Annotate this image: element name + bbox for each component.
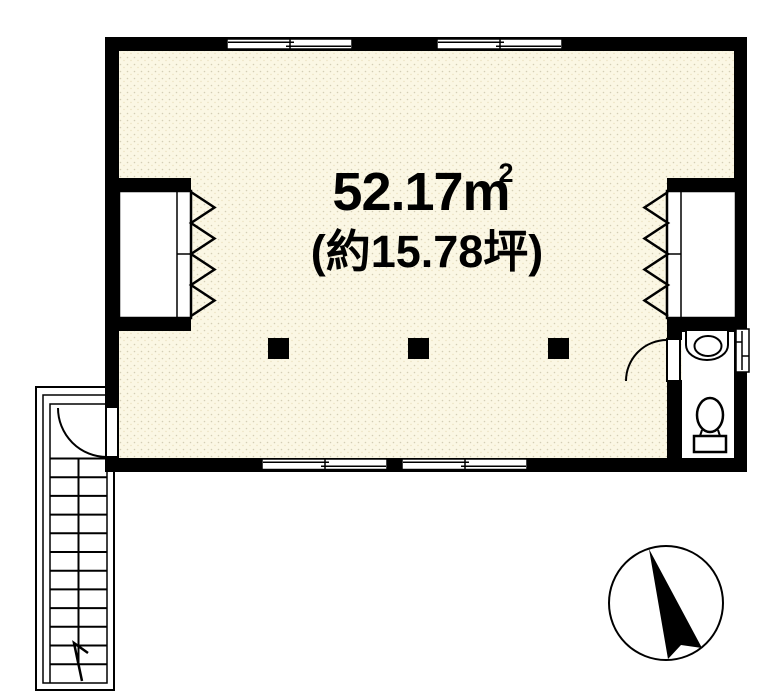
area-tsubo-label: (約15.78坪)	[311, 226, 544, 277]
floorplan-drawing: 52.17m 2 (約15.78坪)	[0, 0, 780, 692]
window-top-right	[437, 39, 562, 49]
window-bottom-right	[402, 459, 527, 470]
pillar	[408, 338, 429, 359]
floorplan-canvas: 52.17m 2 (約15.78坪)	[0, 0, 780, 692]
closet-left-top-wall	[105, 178, 191, 191]
pillar	[548, 338, 569, 359]
toilet-window	[736, 329, 749, 372]
entry-door-leaf	[106, 407, 118, 457]
pillar	[268, 338, 289, 359]
window-bottom-left	[262, 459, 387, 470]
area-label: 52.17m	[332, 162, 509, 222]
closet-right-top-wall	[667, 178, 747, 191]
toilet-icon	[694, 398, 726, 452]
staircase	[36, 387, 114, 690]
toilet-room-wall-lower	[667, 380, 682, 458]
sink-icon	[686, 331, 728, 360]
closet-right-bottom-wall	[667, 318, 747, 332]
north-compass	[609, 546, 723, 660]
toilet-door	[667, 339, 680, 381]
window-top-left	[227, 39, 352, 49]
area-superscript: 2	[498, 158, 513, 188]
closet-left-bottom-wall	[105, 318, 191, 331]
